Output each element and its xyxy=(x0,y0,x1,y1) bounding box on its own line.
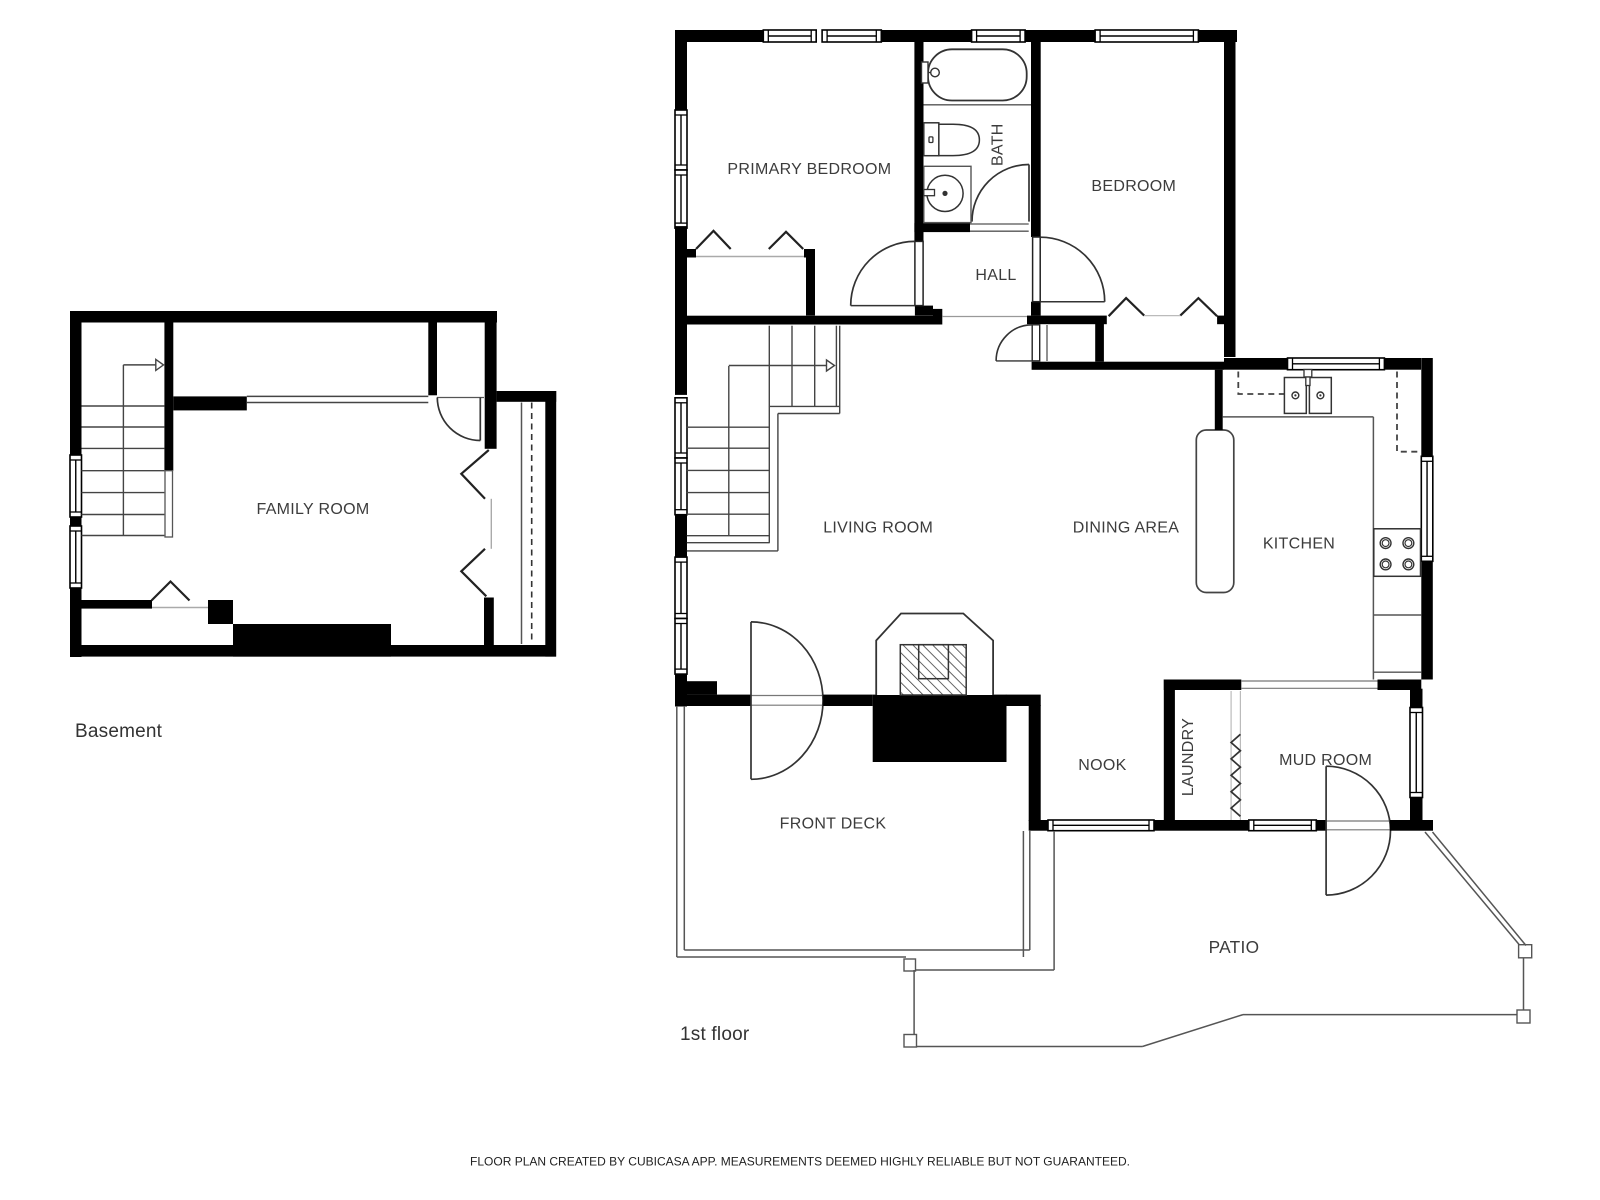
svg-text:LIVING ROOM: LIVING ROOM xyxy=(823,519,933,536)
svg-text:HALL: HALL xyxy=(975,267,1016,284)
svg-text:FAMILY ROOM: FAMILY ROOM xyxy=(257,501,370,518)
svg-text:BEDROOM: BEDROOM xyxy=(1091,178,1176,195)
svg-text:DINING AREA: DINING AREA xyxy=(1073,519,1179,536)
svg-text:MUD ROOM: MUD ROOM xyxy=(1279,752,1372,769)
svg-text:1st floor: 1st floor xyxy=(680,1024,750,1045)
svg-text:BATH: BATH xyxy=(990,123,1007,166)
svg-text:FLOOR PLAN CREATED BY CUBICASA: FLOOR PLAN CREATED BY CUBICASA APP. MEAS… xyxy=(470,1155,1130,1169)
svg-text:NOOK: NOOK xyxy=(1078,757,1126,774)
svg-text:LAUNDRY: LAUNDRY xyxy=(1180,718,1197,796)
svg-text:KITCHEN: KITCHEN xyxy=(1263,535,1335,552)
svg-text:PRIMARY BEDROOM: PRIMARY BEDROOM xyxy=(727,161,891,178)
svg-text:Basement: Basement xyxy=(75,721,163,742)
svg-text:FRONT DECK: FRONT DECK xyxy=(780,816,887,833)
svg-text:PATIO: PATIO xyxy=(1209,937,1260,957)
